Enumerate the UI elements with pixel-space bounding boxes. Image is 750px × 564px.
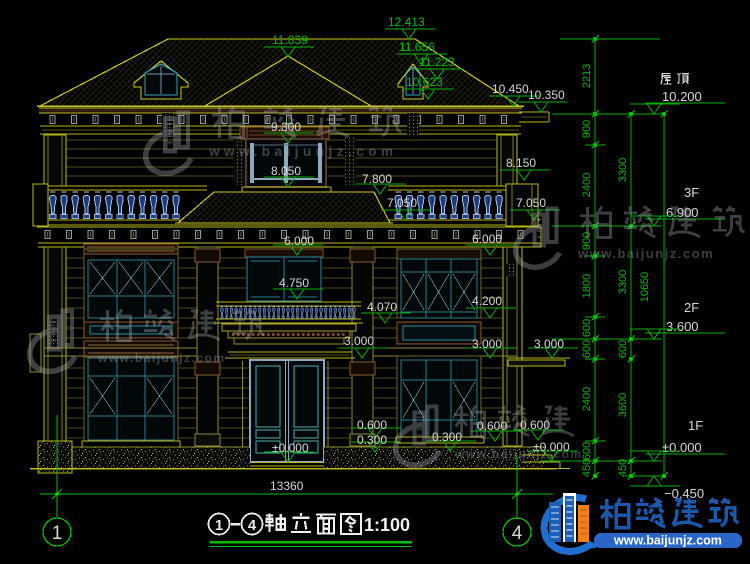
svg-text:6.000: 6.000 xyxy=(284,234,314,248)
svg-text:4.750: 4.750 xyxy=(279,276,309,290)
svg-text:1: 1 xyxy=(215,517,223,534)
svg-text:3.000: 3.000 xyxy=(472,337,502,351)
svg-text:3300: 3300 xyxy=(617,270,629,294)
svg-text:−0.450: −0.450 xyxy=(664,486,704,501)
svg-text:7.050: 7.050 xyxy=(516,196,546,210)
svg-text:2F: 2F xyxy=(684,300,699,315)
svg-text:8.150: 8.150 xyxy=(506,156,536,170)
svg-text:600: 600 xyxy=(581,340,593,358)
svg-text:4: 4 xyxy=(512,523,523,544)
svg-text:3.600: 3.600 xyxy=(666,319,699,334)
svg-text:3.000: 3.000 xyxy=(344,334,374,348)
svg-text:11.223: 11.223 xyxy=(419,55,455,69)
svg-text:450: 450 xyxy=(617,459,629,477)
svg-text:1:100: 1:100 xyxy=(364,515,410,535)
svg-text:2400: 2400 xyxy=(581,387,593,411)
svg-text:10.200: 10.200 xyxy=(662,89,702,104)
svg-text:www.baijunjz.com: www.baijunjz.com xyxy=(208,144,398,159)
svg-text:4.200: 4.200 xyxy=(472,294,502,308)
svg-text:2400: 2400 xyxy=(581,173,593,197)
svg-text:10.450: 10.450 xyxy=(492,82,529,96)
svg-text:2213: 2213 xyxy=(581,64,593,88)
svg-text:11.839: 11.839 xyxy=(272,33,308,47)
svg-text:8.050: 8.050 xyxy=(271,164,301,178)
svg-text:600: 600 xyxy=(617,340,629,358)
svg-text:7.800: 7.800 xyxy=(362,172,392,186)
svg-text:0.600: 0.600 xyxy=(357,418,387,432)
svg-text:10.350: 10.350 xyxy=(528,88,565,102)
svg-text:3300: 3300 xyxy=(617,158,629,182)
svg-text:1F: 1F xyxy=(688,418,703,433)
svg-text:±0.000: ±0.000 xyxy=(272,441,309,455)
svg-text:13360: 13360 xyxy=(270,479,304,493)
svg-text:±0.000: ±0.000 xyxy=(662,440,702,455)
svg-text:12.413: 12.413 xyxy=(388,15,425,29)
svg-text:3F: 3F xyxy=(684,185,699,200)
svg-text:6.900: 6.900 xyxy=(666,205,699,220)
svg-text:600: 600 xyxy=(581,442,593,460)
svg-text:1800: 1800 xyxy=(581,274,593,298)
svg-text:www.baijunjz.com: www.baijunjz.com xyxy=(454,447,583,461)
svg-text:10.623: 10.623 xyxy=(406,75,443,89)
svg-text:www.baijunjz.com: www.baijunjz.com xyxy=(577,246,714,261)
svg-text:7.050: 7.050 xyxy=(387,196,417,210)
svg-text:3600: 3600 xyxy=(617,393,629,417)
svg-text:www.baijunjz.com: www.baijunjz.com xyxy=(97,351,226,365)
svg-text:0.300: 0.300 xyxy=(357,433,387,447)
svg-text:450: 450 xyxy=(581,459,593,477)
svg-text:6.000: 6.000 xyxy=(472,232,502,246)
svg-text:900: 900 xyxy=(581,120,593,138)
svg-text:www.baijunjz.com: www.baijunjz.com xyxy=(613,534,722,548)
svg-text:4: 4 xyxy=(248,517,257,534)
svg-text:1: 1 xyxy=(52,523,63,544)
svg-text:600: 600 xyxy=(581,319,593,337)
svg-text:10650: 10650 xyxy=(639,272,651,303)
svg-text:4.070: 4.070 xyxy=(367,300,397,314)
svg-text:11.656: 11.656 xyxy=(399,40,435,54)
